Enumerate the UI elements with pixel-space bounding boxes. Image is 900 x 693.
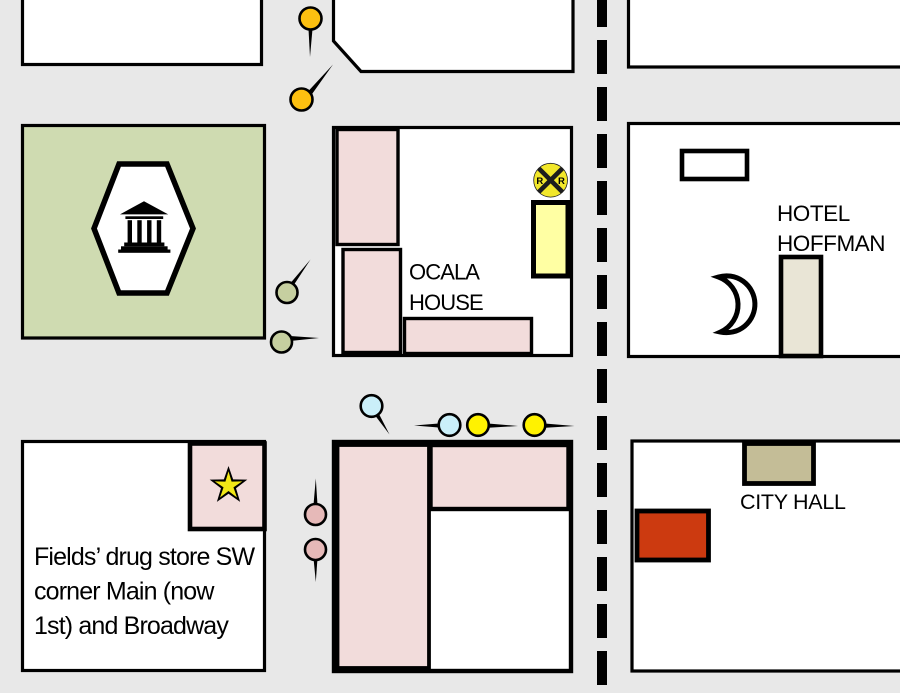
svg-text:HOFFMAN: HOFFMAN [777,231,885,256]
svg-text:1st) and Broadway: 1st) and Broadway [34,612,229,640]
svg-text:R: R [536,176,543,187]
svg-text:R: R [558,176,565,187]
svg-text:CITY HALL: CITY HALL [740,490,846,514]
svg-text:corner Main (now: corner Main (now [34,578,215,606]
svg-text:OCALA: OCALA [409,260,480,285]
svg-text:HOTEL: HOTEL [777,201,850,226]
svg-text:HOUSE: HOUSE [409,290,483,315]
svg-text:Fields’ drug store SW: Fields’ drug store SW [34,543,255,571]
